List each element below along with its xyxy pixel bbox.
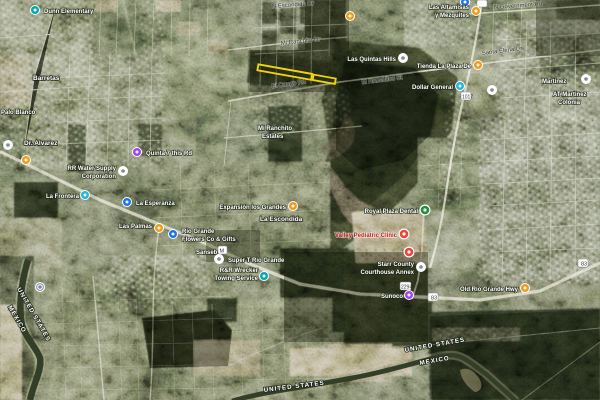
svg-text:Sanseb: Sanseb <box>196 250 218 256</box>
svg-text:Las Altamisas: Las Altamisas <box>429 5 470 11</box>
svg-text:Barretas: Barretas <box>33 75 60 82</box>
svg-text:Las Quintas Hills: Las Quintas Hills <box>347 57 396 63</box>
svg-text:1017: 1017 <box>462 95 473 101</box>
svg-text:Starr County: Starr County <box>378 262 415 268</box>
svg-text:Corporation: Corporation <box>82 174 117 180</box>
svg-text:Towing Service: Towing Service <box>214 276 258 282</box>
svg-text:y Mezquites: y Mezquites <box>435 13 470 19</box>
svg-text:Courthouse Annex: Courthouse Annex <box>361 270 415 276</box>
svg-text:Martinez: Martinez <box>542 79 566 85</box>
svg-text:M: M <box>220 249 225 255</box>
svg-text:Super T Rio Grande: Super T Rio Grande <box>228 258 285 264</box>
svg-text:Valley Pediatric Clinic: Valley Pediatric Clinic <box>335 233 398 239</box>
svg-text:La Esperanza: La Esperanza <box>136 201 175 207</box>
svg-text:La Frontera: La Frontera <box>46 194 80 200</box>
svg-text:Tienda La Plaza De: Tienda La Plaza De <box>417 64 472 70</box>
svg-text:83: 83 <box>581 262 587 268</box>
svg-text:Old Rio Grande Hwy: Old Rio Grande Hwy <box>460 287 519 293</box>
svg-text:83: 83 <box>431 296 437 302</box>
svg-text:Estates: Estates <box>262 134 284 140</box>
svg-text:Dr. Alvarez: Dr. Alvarez <box>24 140 58 147</box>
svg-text:Expansión los Grandes: Expansión los Grandes <box>219 205 286 211</box>
svg-text:Colonia: Colonia <box>558 100 581 106</box>
svg-text:Dunn Elementary: Dunn Elementary <box>44 9 94 15</box>
svg-text:Sunoco: Sunoco <box>381 294 403 300</box>
svg-text:Dollar General: Dollar General <box>412 85 453 91</box>
svg-text:Las Palmas: Las Palmas <box>119 224 153 230</box>
svg-text:Quinta 7 this Rd: Quinta 7 this Rd <box>146 151 192 157</box>
svg-text:2294: 2294 <box>401 285 412 291</box>
svg-text:R&R Wrecker: R&R Wrecker <box>220 268 259 274</box>
svg-text:RR Water Supply: RR Water Supply <box>68 166 117 172</box>
svg-text:Palo Blanco: Palo Blanco <box>1 110 36 116</box>
svg-text:Rio Grande: Rio Grande <box>182 229 215 235</box>
svg-text:Mi Ranchito: Mi Ranchito <box>258 126 292 132</box>
svg-text:La Escondida: La Escondida <box>260 216 303 223</box>
svg-text:AT Martinez: AT Martinez <box>553 92 587 98</box>
svg-text:Royal Plaza Dental: Royal Plaza Dental <box>365 209 419 215</box>
svg-text:Flowers Co & Gifts: Flowers Co & Gifts <box>182 237 236 243</box>
